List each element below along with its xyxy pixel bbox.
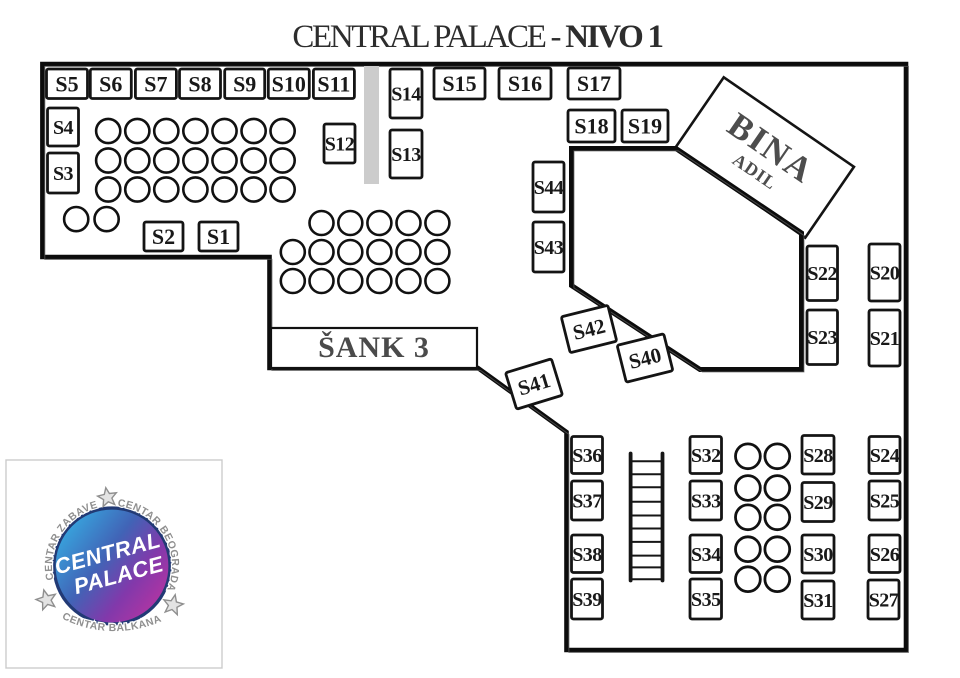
svg-text:S19: S19	[628, 114, 662, 139]
svg-text:S32: S32	[691, 445, 721, 467]
svg-text:S8: S8	[188, 72, 211, 97]
svg-text:S11: S11	[317, 72, 350, 97]
svg-text:S15: S15	[442, 71, 476, 96]
svg-text:S25: S25	[870, 491, 900, 513]
svg-text:S34: S34	[691, 544, 721, 566]
svg-text:S18: S18	[574, 114, 608, 139]
svg-text:S30: S30	[803, 544, 833, 566]
svg-text:S2: S2	[152, 224, 175, 249]
svg-text:S6: S6	[99, 72, 122, 97]
svg-text:S43: S43	[534, 237, 564, 259]
svg-text:S4: S4	[53, 117, 74, 139]
svg-text:S5: S5	[55, 72, 78, 97]
svg-text:S3: S3	[53, 163, 74, 185]
svg-text:S28: S28	[803, 445, 833, 467]
svg-text:S37: S37	[572, 491, 602, 513]
svg-text:S36: S36	[572, 445, 602, 467]
svg-text:S27: S27	[869, 590, 899, 612]
svg-text:S22: S22	[807, 263, 837, 285]
svg-text:S29: S29	[803, 492, 833, 514]
svg-text:S20: S20	[870, 263, 900, 285]
svg-text:S35: S35	[691, 589, 721, 611]
svg-text:S23: S23	[807, 327, 837, 349]
svg-text:S21: S21	[870, 328, 900, 350]
svg-text:S14: S14	[391, 84, 421, 106]
svg-text:S16: S16	[508, 71, 542, 96]
svg-text:S38: S38	[572, 544, 602, 566]
svg-text:S17: S17	[577, 71, 611, 96]
svg-text:S9: S9	[233, 72, 256, 97]
svg-text:S39: S39	[572, 589, 602, 611]
svg-text:S12: S12	[325, 134, 355, 156]
svg-text:S44: S44	[534, 177, 564, 199]
svg-text:S24: S24	[870, 445, 900, 467]
svg-text:CENTRAL PALACE - NIVO 1: CENTRAL PALACE - NIVO 1	[292, 19, 662, 55]
svg-text:ŠANK 3: ŠANK 3	[318, 331, 430, 364]
svg-text:S10: S10	[272, 72, 306, 97]
svg-text:S13: S13	[391, 144, 421, 166]
svg-text:S7: S7	[144, 72, 167, 97]
svg-text:S26: S26	[870, 544, 900, 566]
svg-text:S1: S1	[207, 224, 230, 249]
svg-text:S31: S31	[803, 590, 833, 612]
svg-text:S33: S33	[691, 491, 721, 513]
